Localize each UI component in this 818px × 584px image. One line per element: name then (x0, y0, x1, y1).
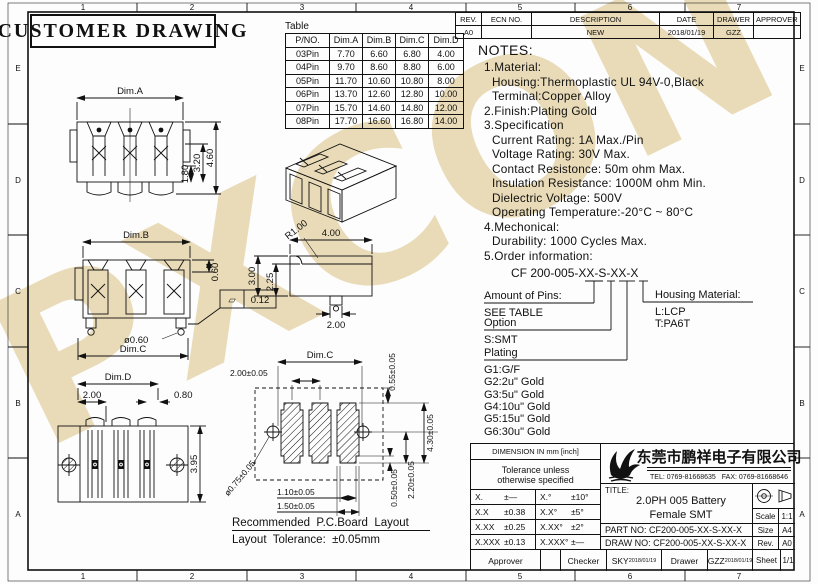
third-angle-projection-icon (754, 486, 794, 506)
drawing-title-line1: 2.0PH 005 Battery (621, 494, 741, 508)
tolerance-row: X.XX ±0.25 X.XX° ±2° (471, 520, 601, 535)
notes-heading: NOTES: (478, 42, 533, 58)
pcb-layout: Dim.C 2.00±0.05 0.55±0.05 4.30±0.05 2.20… (228, 348, 470, 518)
company-tel: TEL: 0769-81668635 (650, 474, 716, 481)
zone-label: A (15, 510, 21, 519)
table-header-row: REV. ECN NO. DESCRIPTION DATE DRAWER APP… (456, 13, 801, 26)
company-underline (647, 467, 791, 471)
order-plating-option: G4:10u" Gold (484, 401, 550, 413)
approver-label: Approver (471, 550, 541, 571)
tolerance-note-line: Tolerance unless (502, 465, 570, 475)
tolerance-row: X.X ±0.38 X.X° ±5° (471, 505, 601, 520)
tolerance-row: X. ±— X.° ±10° (471, 490, 601, 505)
dim-label: 2.00 (83, 390, 102, 401)
zone-label: 3 (300, 572, 305, 581)
size-row: Size A4 (753, 524, 795, 537)
zone-label: 5 (518, 3, 523, 12)
zone-label: 6 (628, 3, 633, 12)
table-row: A0 NEW 2018/01/19 GZZ (456, 26, 801, 39)
pin-dimension-table: P/NO. Dim.A Dim.B Dim.C Dim.D 03Pin7.706… (285, 33, 464, 129)
title-block: DIMENSION IN mm [inch] Tolerance unless … (470, 443, 794, 570)
company-contact: TEL: 0769-81668635 FAX: 0769-81668646 (643, 472, 795, 483)
dim-label: 2.25 (265, 273, 276, 292)
dim-label: R1.00 (283, 218, 310, 242)
zone-label: 5 (518, 572, 523, 581)
dim-label: 4.60 (205, 149, 216, 168)
customer-drawing-stamp: CUSTOMER DRAWING (30, 14, 216, 48)
tolerance-row: X.XXX ±0.13 X.XXX° ±— (471, 535, 601, 550)
zone-label: 2 (190, 572, 195, 581)
dim-label: 2.00±0.05 (230, 368, 268, 378)
revision-table: REV. ECN NO. DESCRIPTION DATE DRAWER APP… (455, 12, 801, 39)
note-line: Dielectric Voltage: 500V (492, 191, 622, 205)
zone-label: C (799, 287, 805, 296)
table-row: 05Pin11.7010.6010.808.00 (286, 74, 464, 88)
company-fax: FAX: 0769-81668646 (722, 474, 788, 481)
note-line: Insulation Resistance: 1000M ohm Min. (492, 176, 706, 190)
note-line: Housing:Thermoplastic UL 94V-0,Black (492, 75, 704, 89)
table-header-row: P/NO. Dim.A Dim.B Dim.C Dim.D (286, 34, 464, 48)
zone-label: B (15, 399, 20, 408)
col-header: Dim.B (363, 34, 396, 48)
order-pins-label: Amount of Pins: (484, 290, 562, 302)
drawer-signature: GZZ2018/01/19 (708, 550, 753, 571)
dim-label: 0.60 (210, 263, 221, 282)
note-line: Contact Resistonce: 50m ohm Max. (492, 162, 685, 176)
company-band: 东莞市鹏祥电子有限公司 TEL: 0769-81668635 FAX: 0769… (601, 444, 795, 484)
zone-label: E (15, 64, 20, 73)
dim-label: Dim.C (307, 350, 334, 361)
dim-label: Dim.C (120, 344, 147, 355)
note-line: Voltage Rating: 30V Max. (492, 147, 630, 161)
table-row: 07Pin15.7014.6014.8012.00 (286, 101, 464, 115)
rev-row: Rev. A0 (753, 537, 795, 550)
order-plating-option: G5:15u" Gold (484, 413, 550, 425)
zone-label: D (15, 176, 21, 185)
flatness-symbol: ▱ (228, 295, 236, 306)
sheet-value: 1/1 (781, 550, 795, 571)
signature-row: Approver Checker SKY2018/01/19 Drawer GZ… (471, 550, 795, 571)
zone-label: 4 (409, 3, 414, 12)
order-housing-option: T:PA6T (655, 318, 691, 330)
zone-label: 7 (737, 572, 742, 581)
dim-label: ø0.75±0.05 (222, 458, 257, 498)
dim-label: 0.55±0.05 (387, 353, 397, 391)
dim-label: Dim.D (105, 372, 132, 383)
pcb-caption: Recommended P.C.Board Layout (232, 517, 430, 531)
dim-label: 0.80 (174, 390, 193, 401)
order-housing-label: Housing Material: (655, 289, 741, 301)
zone-label: E (799, 64, 804, 73)
dim-label: 2.00 (327, 320, 346, 331)
drawing-number: DRAW NO: CF200-005-XX-S-XX-X (601, 537, 753, 550)
note-line: 4.Mechonical: (484, 220, 559, 234)
drawing-title-line2: Female SMT (621, 508, 741, 522)
company-name: 东莞市鹏祥电子有限公司 (645, 445, 793, 467)
col-header: P/NO. (286, 34, 330, 48)
dim-label: 3.00 (247, 267, 258, 286)
dim-table-caption: Table (285, 21, 309, 32)
order-plating-option: G2:2u" Gold (484, 376, 544, 388)
dim-label: 1.80 (180, 165, 191, 184)
table-row: 04Pin9.708.608.806.00 (286, 61, 464, 75)
dim-label: 1.10±0.05 (277, 487, 315, 497)
sheet-label: Sheet (753, 550, 781, 571)
dim-label: 0.50±0.05 (389, 469, 399, 507)
zone-label: 2 (190, 3, 195, 12)
zone-label: 6 (628, 572, 633, 581)
order-housing-option: L:LCP (655, 306, 686, 318)
approver-value (541, 550, 561, 571)
top-view: Dim.B 0.60 ▱ 0.12 ø0.60 Dim.C (28, 226, 252, 368)
tolerance-note: Tolerance unless otherwise specified (471, 460, 601, 490)
tolerance-note-line: otherwise specified (497, 475, 574, 485)
order-plating-label: Plating (484, 347, 518, 359)
part-number: PART NO: CF200-005-XX-S-XX-X (601, 524, 753, 537)
dim-label: 2.20±0.05 (406, 461, 416, 499)
dim-label: Dim.B (123, 230, 149, 241)
note-line: 1.Material: (484, 60, 541, 74)
size-value: A4 (779, 524, 795, 537)
zone-label: B (799, 399, 804, 408)
isometric-view (256, 124, 418, 232)
table-row: 03Pin7.706.606.804.00 (286, 47, 464, 61)
rev-label: Rev. (753, 537, 779, 550)
zone-label: 7 (737, 3, 742, 12)
note-line: Terminal:Copper Alloy (492, 89, 611, 103)
order-plating-option: G1:G/F (484, 364, 520, 376)
zone-label: A (799, 510, 805, 519)
dim-label: 3.95 (189, 455, 200, 474)
zone-label: 3 (300, 3, 305, 12)
pcb-caption-tolerance: Layout Tolerance: ±0.05mm (232, 534, 380, 546)
col-header: Dim.A (330, 34, 363, 48)
dim-label: 3.20 (192, 154, 203, 173)
zone-label: C (15, 287, 21, 296)
table-row: 06Pin13.7012.6012.8010.00 (286, 88, 464, 102)
front-view: Dim.A 1.80 3.20 4.60 (35, 78, 230, 220)
order-plating-option: G3:5u" Gold (484, 389, 544, 401)
checker-signature: SKY2018/01/19 (607, 550, 662, 571)
dim-label: 4.30±0.05 (425, 414, 435, 452)
scale-label: Scale (753, 509, 779, 524)
bottom-view: Dim.D 2.00 0.80 3.95 (28, 370, 220, 528)
order-info-tree: CF 200-005-XX-S-XX-X Amount of Pins: SEE… (455, 240, 795, 442)
note-line: 2.Finish:Plating Gold (484, 104, 597, 118)
note-line: Operating Temperature:-20°C ~ 80°C (492, 205, 693, 219)
zone-label: 1 (81, 3, 86, 12)
note-line: Current Rating: 1A Max./Pin (492, 133, 644, 147)
dimension-unit-header: DIMENSION IN mm [inch] (471, 444, 601, 460)
note-line: 3.Specification (484, 118, 564, 132)
projection-symbol-cell (753, 484, 795, 509)
zone-label: D (799, 176, 805, 185)
zone-label: 4 (409, 572, 414, 581)
scale-value: 1:1 (779, 509, 795, 524)
order-option-label: Option (484, 317, 516, 329)
dim-label: 1.50±0.05 (277, 501, 315, 511)
drawing-title-cell: TITLE: 2.0PH 005 Battery Female SMT (601, 484, 753, 524)
zone-label: 1 (81, 572, 86, 581)
drawer-label: Drawer (662, 550, 708, 571)
rev-value: A0 (779, 537, 795, 550)
order-plating-option: G6:30u" Gold (484, 426, 550, 438)
col-header: Dim.C (396, 34, 429, 48)
order-part-code: CF 200-005-XX-S-XX-X (511, 266, 638, 280)
dim-label: 4.00 (322, 228, 341, 239)
size-label: Size (753, 524, 779, 537)
dim-label: Dim.A (117, 86, 144, 97)
scale-row: Scale 1:1 (753, 509, 795, 524)
profile-view: R1.00 4.00 3.00 2.25 2.00 (242, 218, 422, 342)
checker-label: Checker (561, 550, 607, 571)
order-option-value: S:SMT (484, 334, 518, 346)
